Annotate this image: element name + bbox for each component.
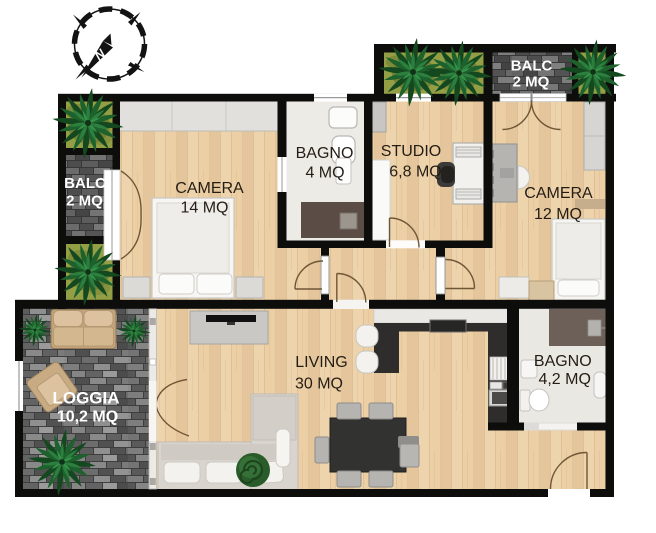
svg-text:BALC: BALC (511, 58, 553, 75)
svg-text:LIVING: LIVING (295, 354, 347, 371)
svg-text:CAMERA: CAMERA (175, 180, 244, 197)
svg-text:4,2 MQ: 4,2 MQ (538, 371, 590, 388)
svg-text:2 MQ: 2 MQ (513, 74, 550, 91)
svg-text:BALC: BALC (64, 175, 106, 192)
svg-text:6,8 MQ: 6,8 MQ (389, 164, 441, 181)
svg-text:BAGNO: BAGNO (296, 145, 354, 162)
svg-text:4 MQ: 4 MQ (305, 165, 344, 182)
svg-text:BAGNO: BAGNO (534, 353, 592, 370)
svg-text:14 MQ: 14 MQ (180, 200, 228, 217)
svg-text:12 MQ: 12 MQ (534, 206, 582, 223)
svg-text:LOGGIA: LOGGIA (52, 389, 119, 408)
svg-text:STUDIO: STUDIO (381, 143, 441, 160)
svg-text:30 MQ: 30 MQ (295, 376, 343, 393)
svg-text:CAMERA: CAMERA (524, 185, 593, 202)
svg-text:10,2 MQ: 10,2 MQ (57, 409, 118, 426)
svg-text:2 MQ: 2 MQ (66, 193, 103, 210)
